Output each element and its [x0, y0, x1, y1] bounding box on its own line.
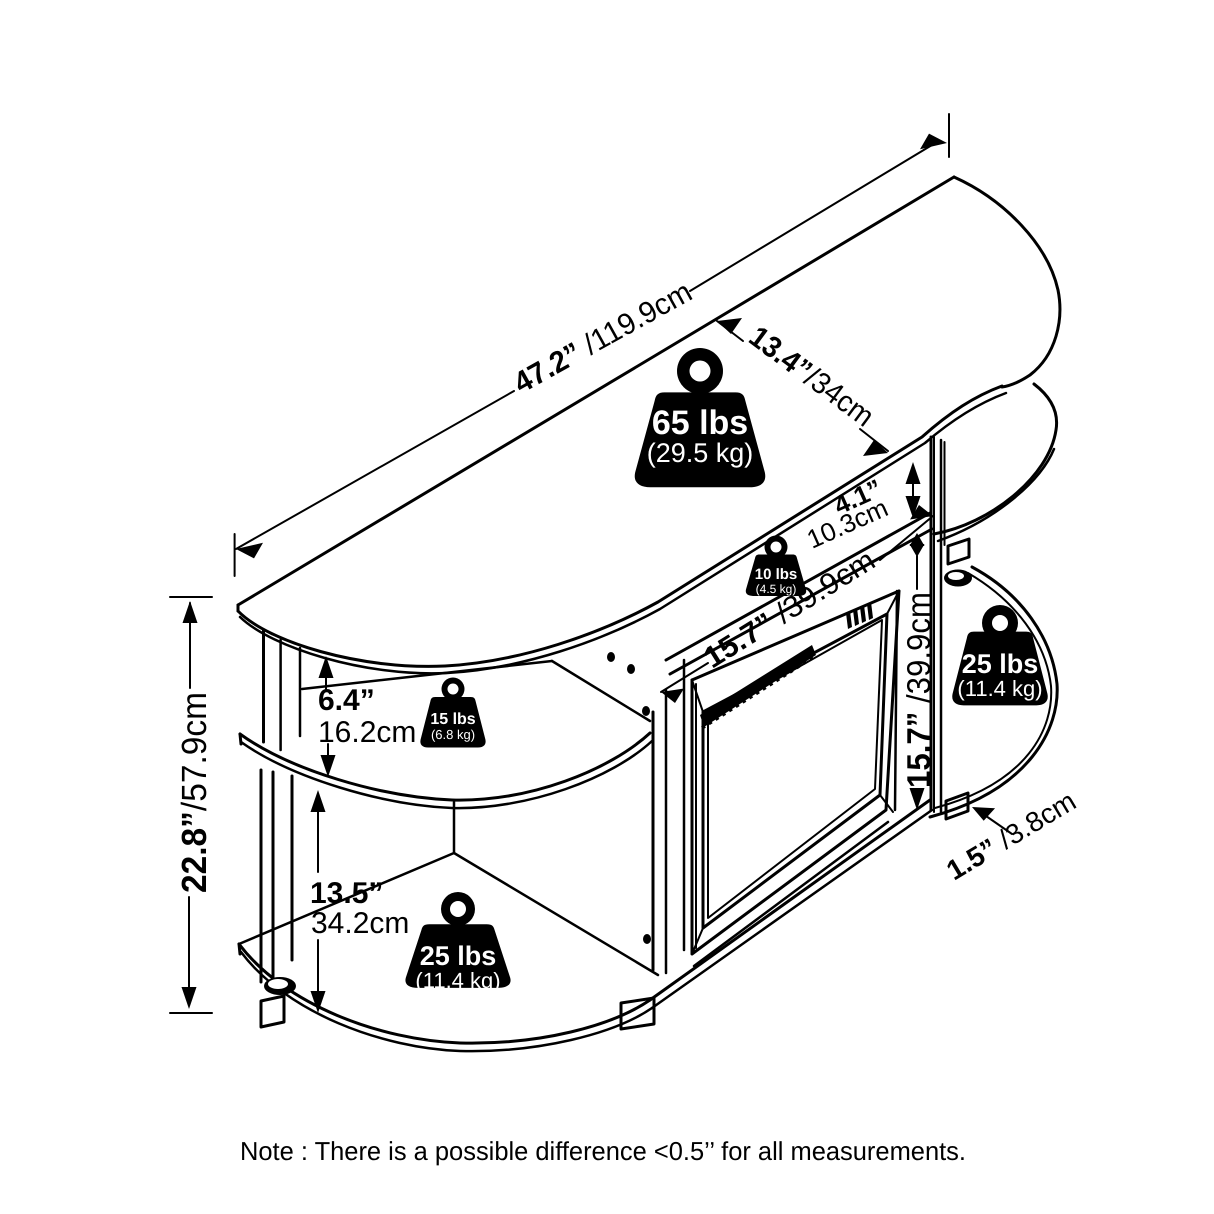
svg-text:Note : There is a possible dif: Note : There is a possible difference <0…: [240, 1136, 966, 1166]
svg-text:65 lbs: 65 lbs: [652, 404, 748, 442]
svg-text:(11.4 kg): (11.4 kg): [415, 968, 500, 993]
svg-text:15 lbs: 15 lbs: [430, 711, 475, 728]
svg-text:13.5”: 13.5”: [310, 877, 383, 910]
svg-text:(4.5 kg): (4.5 kg): [756, 582, 797, 596]
svg-text:10 lbs: 10 lbs: [755, 566, 798, 583]
svg-text:15.7” /39.9cm: 15.7” /39.9cm: [900, 592, 937, 788]
svg-text:(11.4 kg): (11.4 kg): [957, 676, 1042, 701]
svg-text:(29.5 kg): (29.5 kg): [647, 438, 754, 468]
svg-text:25 lbs: 25 lbs: [962, 649, 1039, 679]
svg-text:16.2cm: 16.2cm: [318, 716, 416, 749]
svg-text:(6.8 kg): (6.8 kg): [431, 727, 475, 742]
svg-text:6.4”: 6.4”: [318, 684, 375, 717]
svg-text:34.2cm: 34.2cm: [311, 907, 409, 940]
svg-text:25 lbs: 25 lbs: [420, 941, 497, 971]
svg-text:22.8”/57.9cm: 22.8”/57.9cm: [175, 692, 214, 893]
